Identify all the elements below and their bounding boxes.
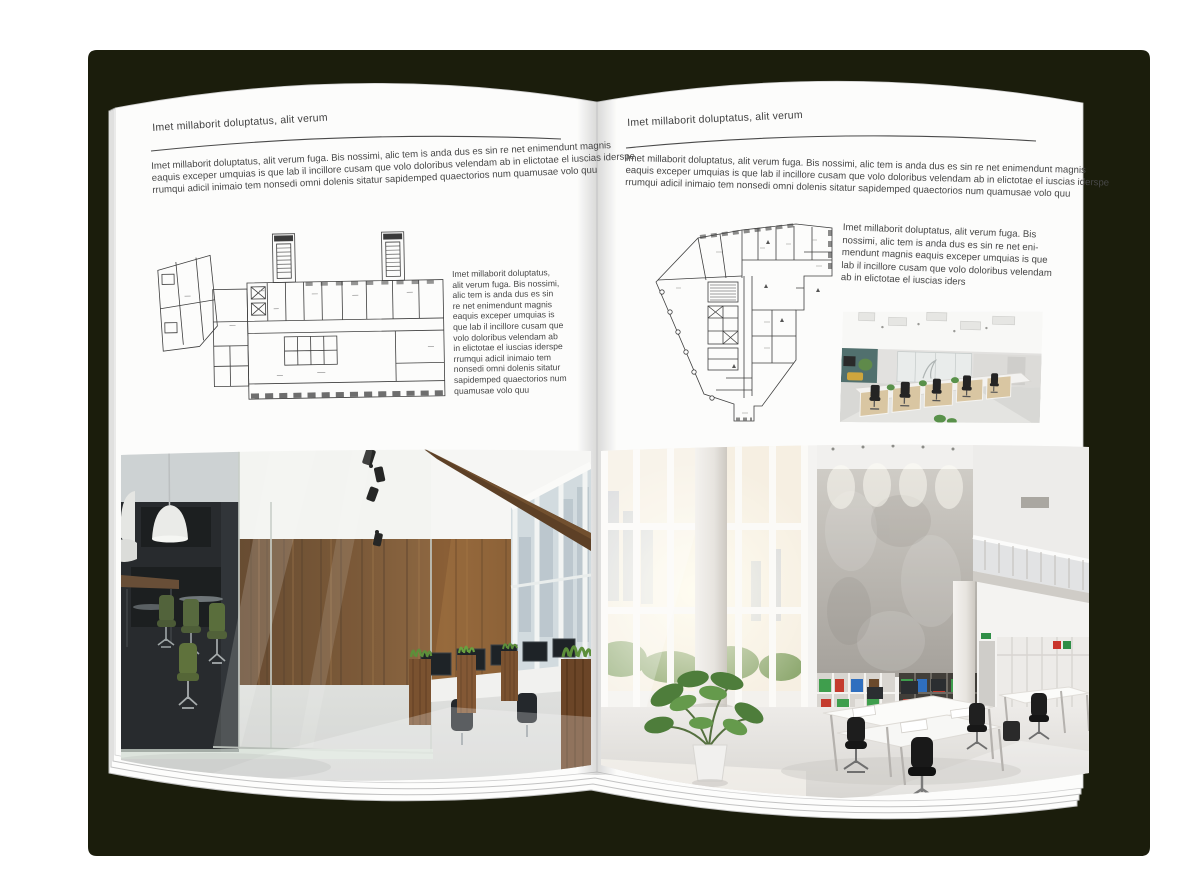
floor-plan-right: [646, 218, 841, 423]
brochure-mockup: Imet millaborit doluptatus, alit verum I…: [0, 0, 1200, 891]
side-line: quamusae volo quu: [454, 383, 574, 396]
side-line: in elictotae el iuscias iderspe: [453, 341, 573, 354]
side-line: sapidemped quaectorios num: [454, 373, 574, 386]
office-photo-small: [840, 306, 1043, 428]
office-photo-left: [121, 447, 591, 784]
floor-plan-left: [153, 221, 451, 418]
side-text-left: Imet millaborit doluptatus, alit verum f…: [452, 267, 574, 396]
office-photo-right: [601, 441, 1089, 799]
side-text-right: Imet millaborit doluptatus, alit verum f…: [841, 222, 1033, 292]
